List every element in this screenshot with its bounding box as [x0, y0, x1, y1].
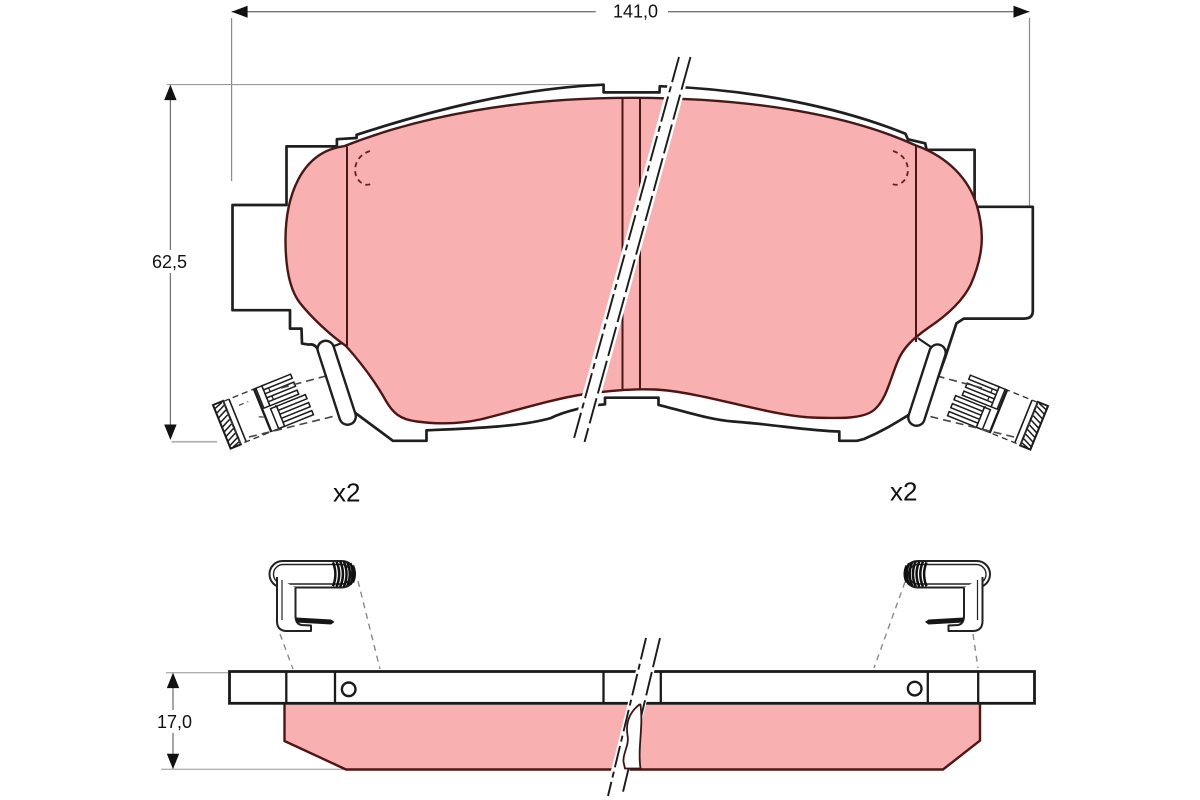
- svg-text:62,5: 62,5: [152, 252, 187, 272]
- svg-text:x2: x2: [333, 478, 360, 508]
- svg-text:x2: x2: [890, 477, 917, 507]
- svg-text:17,0: 17,0: [157, 712, 192, 732]
- svg-text:141,0: 141,0: [613, 2, 658, 22]
